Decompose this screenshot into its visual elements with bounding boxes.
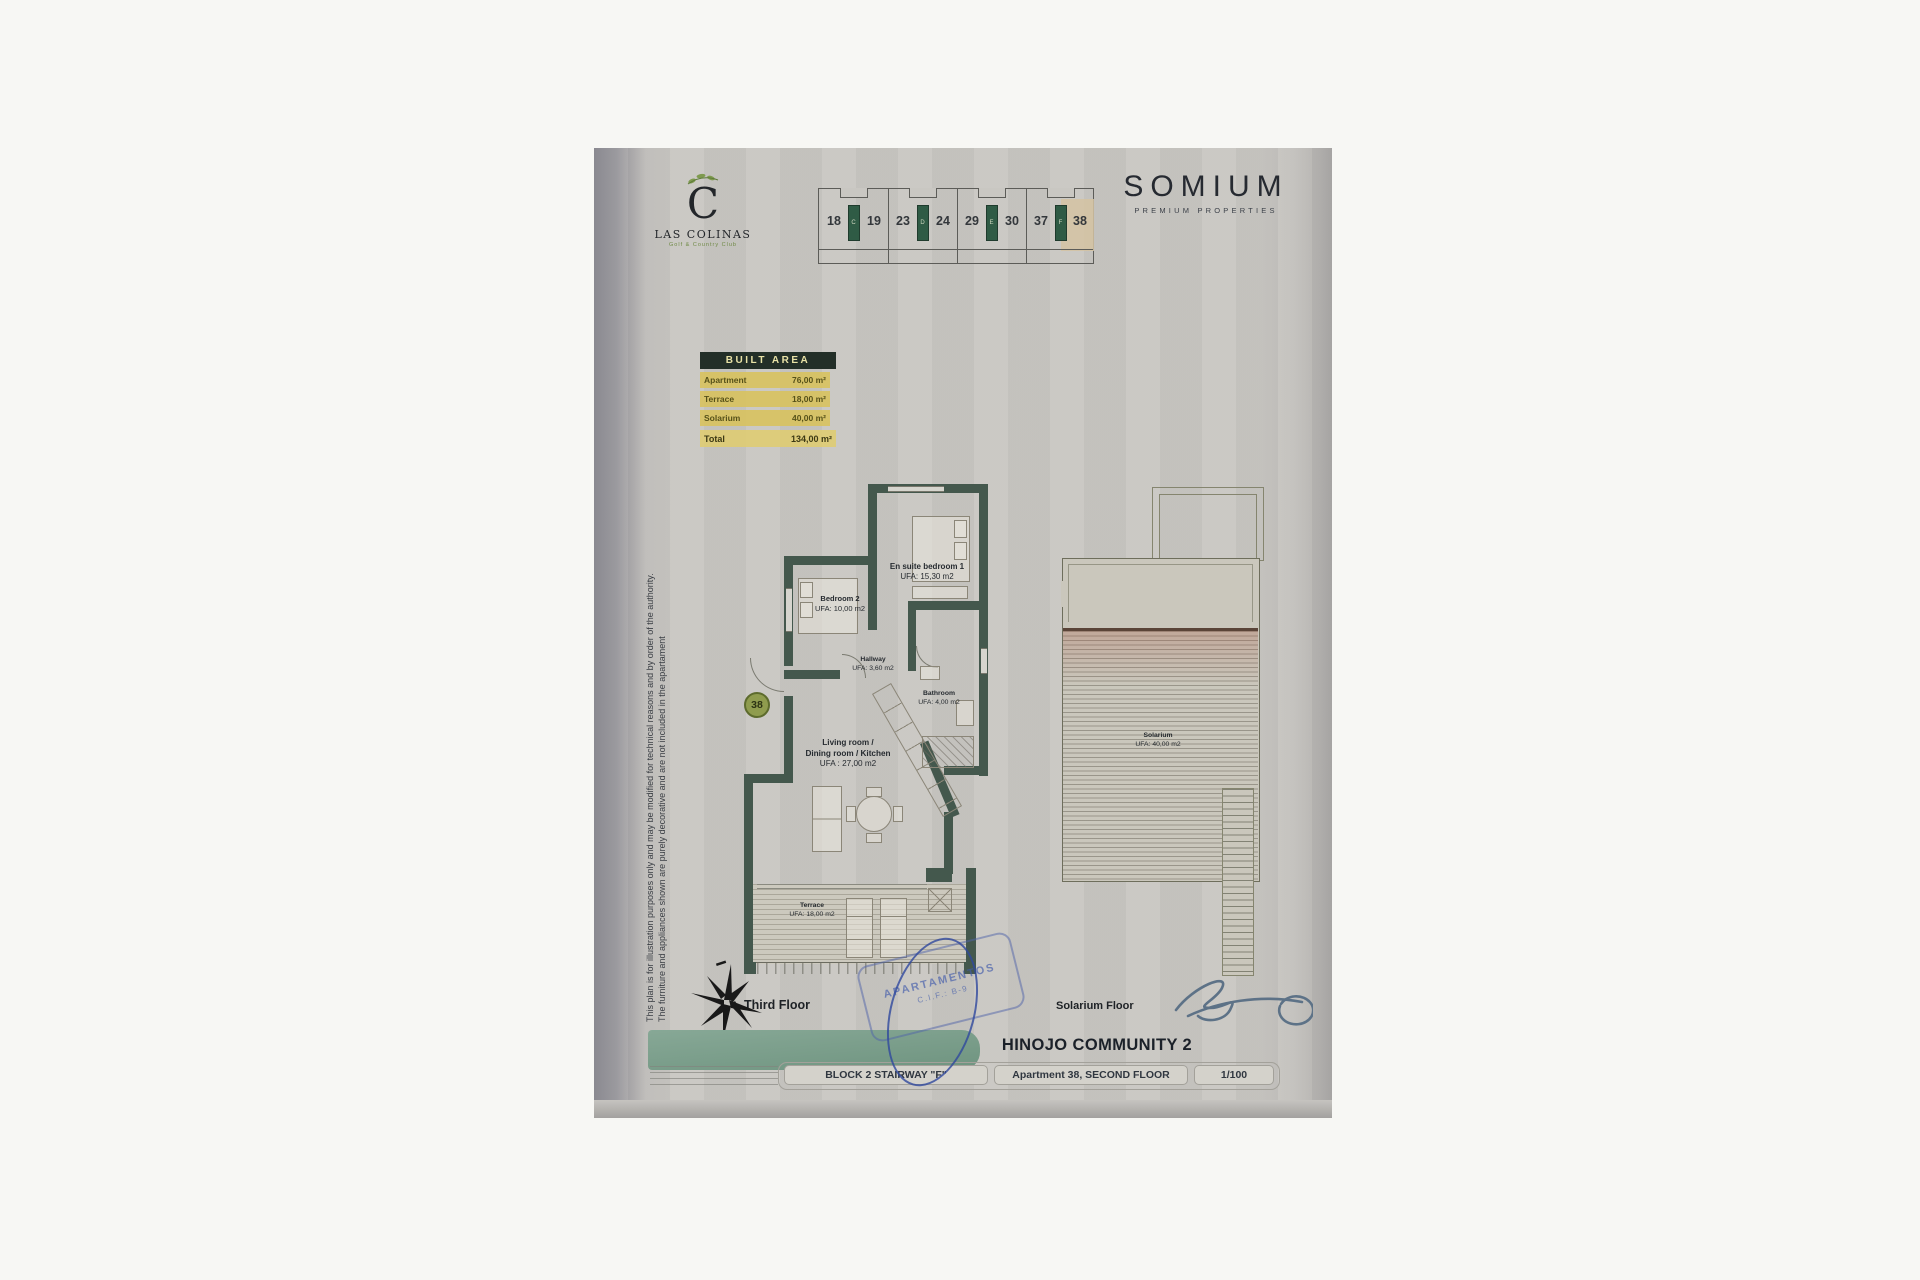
- key-plan-unit: 37: [1026, 203, 1056, 239]
- solarium-stair: [1222, 788, 1254, 976]
- ruled-line: [650, 1078, 778, 1079]
- wall-segment: [926, 868, 952, 882]
- entry-notch: [978, 188, 1006, 198]
- key-plan-strip: 18 19 23 24 29 30 37 38 C D E F: [818, 188, 1094, 264]
- ruled-line: [650, 1072, 778, 1073]
- window: [786, 588, 792, 632]
- room-label-solarium: Solarium UFA: 40,00 m2: [1118, 732, 1198, 750]
- window: [888, 486, 944, 492]
- wall-segment: [744, 774, 753, 974]
- unit-badge: 38: [744, 692, 770, 718]
- sun-lounger: [880, 898, 907, 958]
- olive-branch-icon: [648, 170, 758, 182]
- pillow: [954, 520, 967, 538]
- title-block-row: BLOCK 2 STAIRWAY "F" Apartment 38, SECON…: [778, 1062, 1280, 1090]
- disclaimer-line1: This plan is for illustration purposes o…: [645, 544, 657, 1022]
- wall-segment: [908, 601, 916, 671]
- built-area-row: Solarium40,00 m²: [700, 410, 830, 426]
- entry-notch: [840, 188, 868, 198]
- door-gap: [1061, 581, 1065, 607]
- solarium-caption: Solarium Floor: [1056, 1000, 1176, 1012]
- key-plan-unit: 18: [819, 203, 849, 239]
- entry-notch: [1047, 188, 1075, 198]
- sink: [920, 666, 940, 680]
- stairway-block: E: [986, 205, 998, 241]
- wall-segment: [908, 601, 988, 610]
- key-plan-unit: 23: [888, 203, 918, 239]
- pillow: [954, 542, 967, 560]
- key-plan-unit: 29: [957, 203, 987, 239]
- stairway-block: F: [1055, 205, 1067, 241]
- solarium-tint: [1063, 631, 1258, 686]
- ruled-line: [650, 1084, 778, 1085]
- signature: [1168, 966, 1313, 1038]
- wall-segment: [979, 484, 988, 776]
- somium-name: SOMIUM: [1100, 170, 1312, 204]
- somium-subtitle: PREMIUM PROPERTIES: [1100, 206, 1312, 215]
- room-label-bedroom1: En suite bedroom 1 UFA: 15,30 m2: [872, 562, 982, 583]
- solarium-bulkhead: [1152, 487, 1264, 561]
- room-label-hallway: Hallway UFA: 3,60 m2: [844, 656, 902, 674]
- built-area-total-row: Total134,00 m²: [700, 430, 836, 447]
- room-label-bathroom: Bathroom UFA: 4,00 m2: [906, 690, 972, 708]
- title-block-cell-block: BLOCK 2 STAIRWAY "F": [784, 1065, 988, 1085]
- built-area-table: BUILT AREA Apartment76,00 m² Terrace18,0…: [700, 352, 836, 448]
- community-title: HINOJO COMMUNITY 2: [992, 1036, 1202, 1055]
- wall-segment: [784, 556, 876, 565]
- title-block-cell-apartment: Apartment 38, SECOND FLOOR: [994, 1065, 1188, 1085]
- disclaimer-text: This plan is for illustration purposes o…: [645, 544, 668, 1022]
- sideboard: [812, 786, 842, 852]
- logo-tagline: Golf & Country Club: [648, 242, 758, 248]
- chair: [866, 787, 882, 797]
- key-plan-bottom-band: [819, 249, 1093, 250]
- logo-initial: C: [648, 182, 758, 226]
- stairway-block: C: [848, 205, 860, 241]
- las-colinas-logo: C LAS COLINAS Golf & Country Club: [648, 170, 758, 252]
- somium-logo: SOMIUM PREMIUM PROPERTIES: [1100, 170, 1312, 222]
- scan-edge-shadow: [594, 1100, 1332, 1118]
- parapet-line: [1068, 564, 1253, 622]
- stairway-block: D: [917, 205, 929, 241]
- room-label-bedroom2: Bedroom 2 UFA: 10,00 m2: [796, 594, 884, 614]
- key-plan-unit: 19: [859, 203, 889, 239]
- ruled-line: [650, 1066, 778, 1067]
- title-block-cell-scale: 1/100: [1194, 1065, 1274, 1085]
- wall-segment: [944, 812, 953, 874]
- entry-notch: [909, 188, 937, 198]
- chair: [866, 833, 882, 843]
- window: [981, 648, 987, 674]
- disclaimer-line2: The furniture and appliances shown are p…: [657, 544, 669, 1022]
- built-area-row: Terrace18,00 m²: [700, 391, 830, 407]
- chair: [893, 806, 903, 822]
- key-plan-unit: 30: [997, 203, 1027, 239]
- wardrobe: [912, 586, 968, 599]
- wall-segment: [784, 670, 840, 679]
- terrace-box: [928, 888, 952, 912]
- room-label-terrace: Terrace UFA: 18,00 m2: [770, 902, 854, 920]
- sliding-door-line: [757, 884, 927, 889]
- built-area-header: BUILT AREA: [700, 352, 836, 369]
- dining-table: [856, 796, 892, 832]
- built-area-row: Apartment76,00 m²: [700, 372, 830, 388]
- logo-name: LAS COLINAS: [648, 228, 758, 241]
- chair: [846, 806, 856, 822]
- room-label-living: Living room / Dining room / Kitchen UFA …: [792, 738, 904, 770]
- solarium-bulkhead-inner: [1159, 494, 1257, 560]
- key-plan-unit: 24: [928, 203, 958, 239]
- key-plan-unit: 38: [1065, 203, 1095, 239]
